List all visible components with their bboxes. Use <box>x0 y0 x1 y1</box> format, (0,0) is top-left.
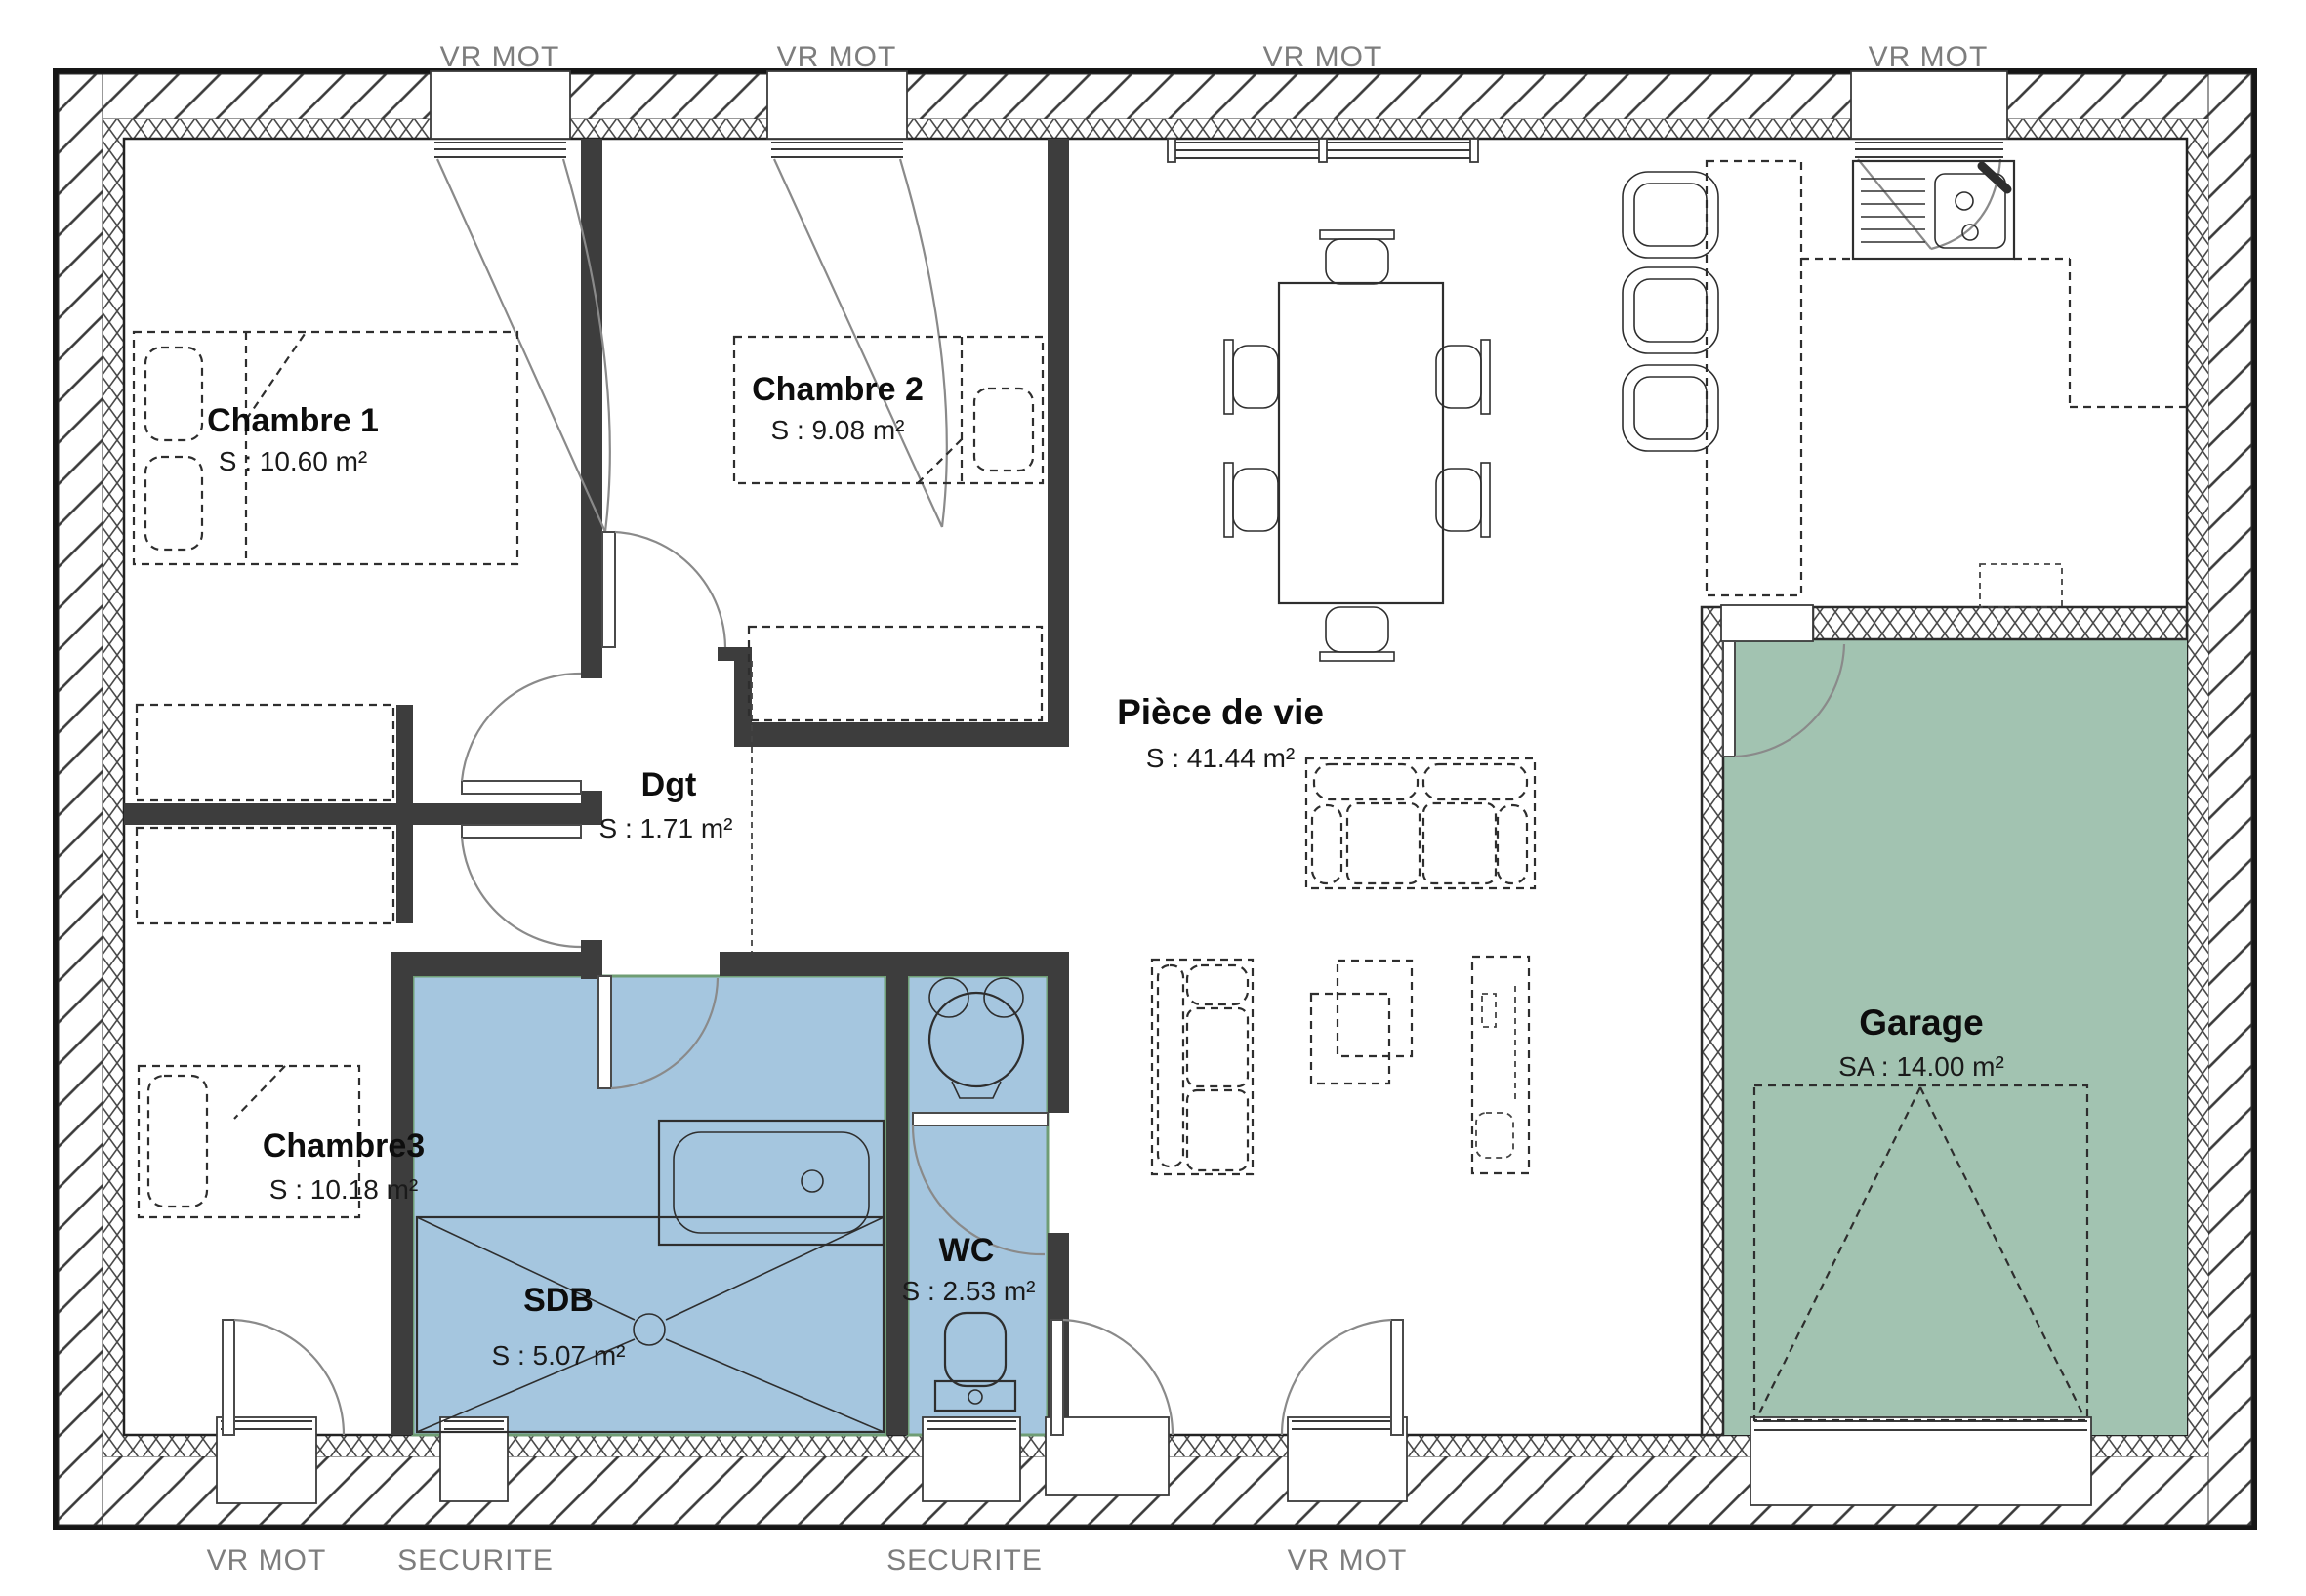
label-living-name: Pièce de vie <box>1117 692 1324 732</box>
label-bottom-window-4: VR MOT <box>1288 1544 1408 1576</box>
floor-plan-page: Chambre 1 S : 10.60 m² Chambre 2 S : 9.0… <box>0 0 2306 1596</box>
closet-stub-ch3 <box>396 825 413 923</box>
wall-living-garage <box>1702 607 1723 1435</box>
garage-side-door-leaf <box>1723 641 1735 757</box>
label-chambre1-name: Chambre 1 <box>207 402 379 439</box>
door-ch3-leaf <box>462 825 581 838</box>
closet-stub-ch1 <box>396 705 413 803</box>
floor-plan-drawing: Chambre 1 S : 10.60 m² Chambre 2 S : 9.0… <box>0 0 2306 1596</box>
label-top-window-3: VR MOT <box>1263 41 1383 73</box>
wall-wc-north <box>886 952 1069 976</box>
label-bottom-window-3: SECURITE <box>886 1544 1043 1576</box>
door-sdb-leaf <box>598 976 611 1088</box>
wall-ch1-ch2 <box>581 139 602 678</box>
entry-door-leaf <box>1051 1320 1063 1435</box>
insulation-left <box>103 119 124 1456</box>
window-kitchen-box <box>1851 71 2007 139</box>
window-living-jamb-left <box>1168 139 1175 162</box>
wall-ch1-ch3 <box>124 803 581 825</box>
label-bottom-window-2: SECURITE <box>397 1544 554 1576</box>
label-chambre2-area: S : 9.08 m² <box>771 415 905 445</box>
label-top-window-1: VR MOT <box>440 41 560 73</box>
label-bottom-window-1: VR MOT <box>207 1544 327 1576</box>
door-ch1-leaf <box>462 781 581 794</box>
label-top-window-4: VR MOT <box>1869 41 1989 73</box>
wall-sdb-north-b <box>720 952 886 976</box>
garage-side-door-opening <box>1721 605 1813 641</box>
insulation-right <box>2187 119 2208 1456</box>
label-chambre3-area: S : 10.18 m² <box>269 1174 419 1205</box>
window-ch1-box <box>431 71 570 139</box>
label-chambre1-area: S : 10.60 m² <box>219 446 368 476</box>
wall-wc-living-up <box>1048 976 1069 1113</box>
window-living-jamb-mid <box>1319 139 1327 162</box>
label-garage-area: SA : 14.00 m² <box>1838 1051 2004 1082</box>
label-living-area: S : 41.44 m² <box>1146 743 1296 773</box>
door-ch3-ext-leaf <box>223 1320 234 1435</box>
wall-ch2-living <box>1048 139 1069 747</box>
wall-sdb-wc <box>886 976 908 1435</box>
room-sdb-floor <box>413 976 885 1435</box>
label-sdb-name: SDB <box>523 1282 594 1319</box>
label-top-window-2: VR MOT <box>777 41 897 73</box>
label-wc-name: WC <box>939 1232 995 1269</box>
window-ch2-box <box>767 71 907 139</box>
wall-garage-north <box>1813 607 2187 639</box>
label-dgt-name: Dgt <box>641 766 697 803</box>
label-dgt-area: S : 1.71 m² <box>599 813 733 843</box>
door-wc-leaf <box>913 1113 1048 1125</box>
wall-ch3-sdb <box>391 976 413 1435</box>
label-chambre3-name: Chambre3 <box>263 1127 425 1165</box>
french-door-leaf <box>1391 1320 1403 1435</box>
window-living-jamb-right <box>1470 139 1478 162</box>
wall-hatch-left <box>59 74 103 1525</box>
wall-sdb-north-a <box>391 952 598 976</box>
wall-hatch-right <box>2208 74 2251 1525</box>
label-garage-name: Garage <box>1859 1003 1984 1043</box>
door-ch2-leaf <box>602 532 615 647</box>
label-wc-area: S : 2.53 m² <box>902 1276 1036 1306</box>
label-chambre2-name: Chambre 2 <box>752 371 924 408</box>
wall-ch2-south-b <box>734 722 1069 747</box>
label-sdb-area: S : 5.07 m² <box>492 1340 626 1371</box>
